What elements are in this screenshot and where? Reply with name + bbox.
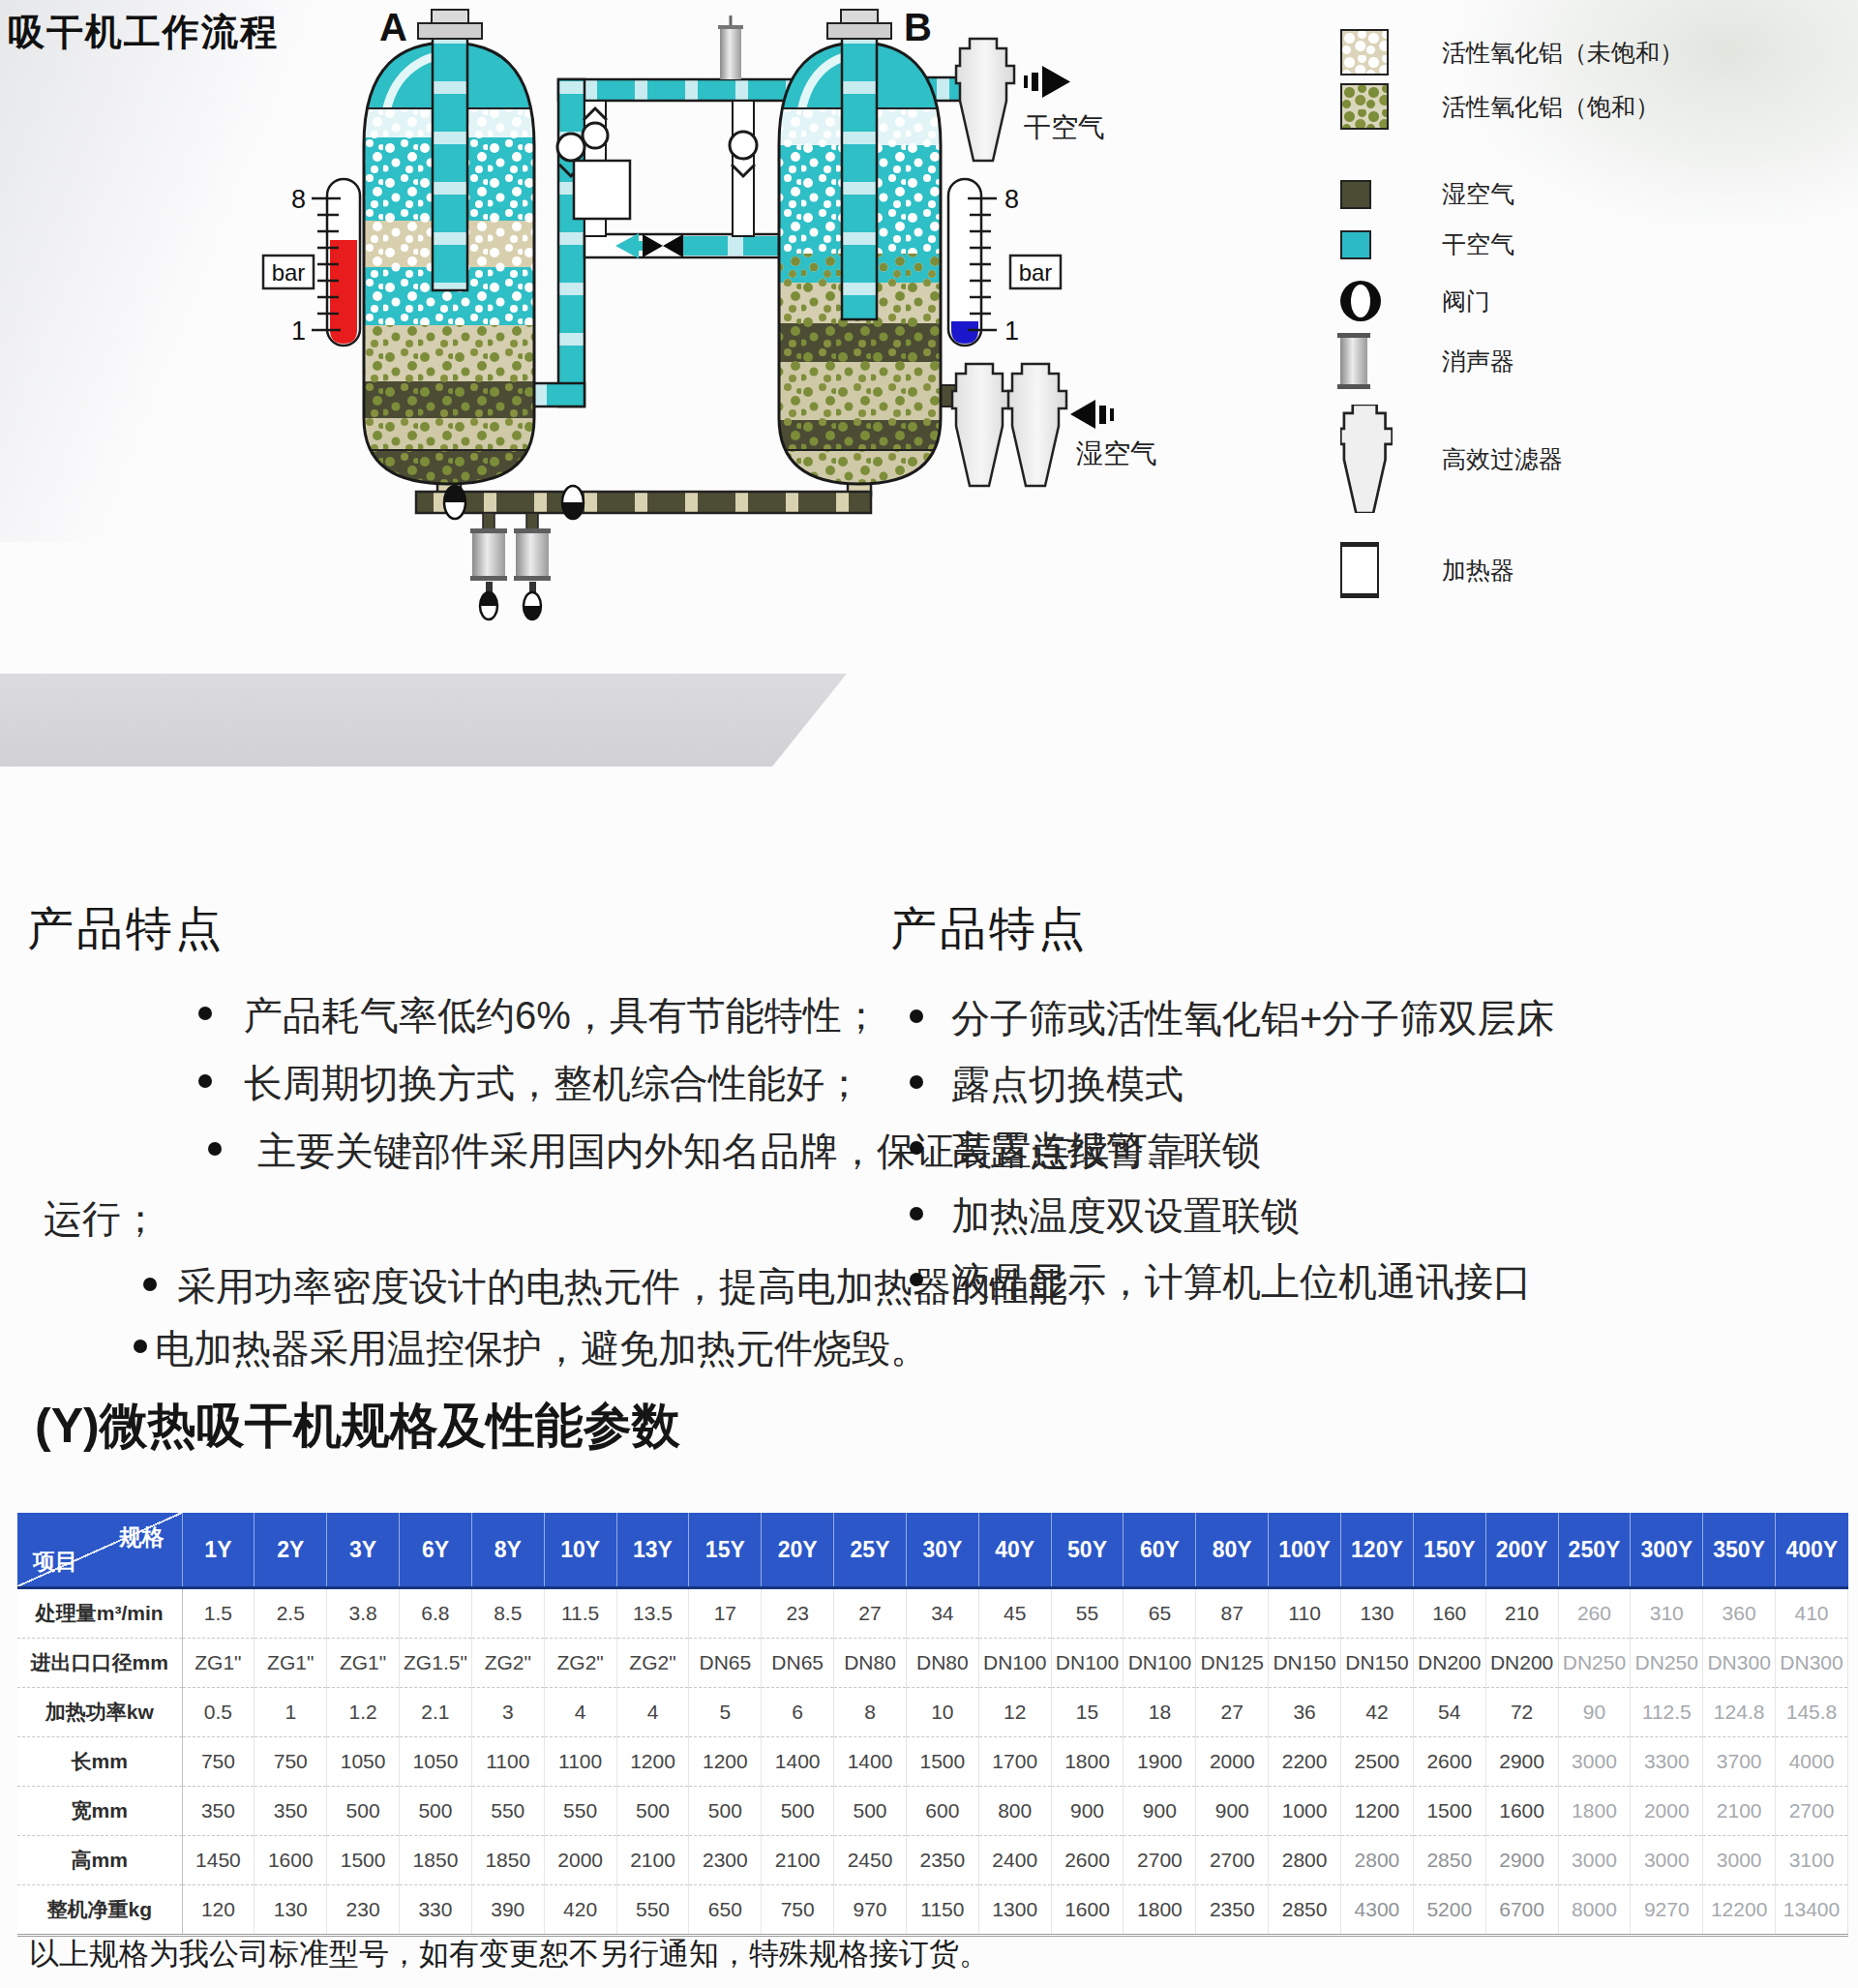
spec-cell: 2600: [1051, 1836, 1124, 1885]
legend-item-label: 阀门: [1442, 286, 1490, 317]
spec-cell: 10: [906, 1688, 978, 1737]
manifold-valve-right: [562, 486, 584, 519]
spec-cell: 2450: [834, 1836, 907, 1885]
spec-cell: 3000: [1631, 1836, 1703, 1885]
spec-cell: DN300: [1703, 1639, 1776, 1688]
spec-cell: 1800: [1558, 1787, 1631, 1836]
legend-item: 活性氧化铝（未饱和）: [1340, 29, 1843, 75]
spec-corner-cell: 规格 项目: [17, 1513, 182, 1588]
feature-item: 分子筛或活性氧化铝+分子筛双层床: [951, 992, 1554, 1045]
spec-column-header: 40Y: [978, 1513, 1051, 1588]
spec-column-header: 13Y: [616, 1513, 689, 1588]
spec-cell: 1850: [400, 1836, 472, 1885]
spec-cell: 13400: [1776, 1885, 1848, 1936]
spec-row: 处理量m³/min1.52.53.86.88.511.513.517232734…: [17, 1588, 1848, 1639]
drain-valve-right: [524, 592, 541, 619]
drain-valve-left: [480, 592, 497, 619]
spec-column-header: 15Y: [689, 1513, 762, 1588]
features-left-heading: 产品特点: [27, 898, 225, 960]
legend-item: 活性氧化铝（饱和）: [1340, 83, 1843, 130]
spec-cell: 90: [1558, 1688, 1631, 1737]
spec-cell: 2.1: [400, 1688, 472, 1737]
spec-cell: 970: [834, 1885, 907, 1936]
tower-b-label: B: [904, 6, 932, 48]
spec-cell: 27: [1196, 1688, 1269, 1737]
spec-column-header: 100Y: [1269, 1513, 1341, 1588]
regeneration-loop: [557, 101, 757, 236]
spec-row: 进出口口径mmZG1"ZG1"ZG1"ZG1.5"ZG2"ZG2"ZG2"DN6…: [17, 1639, 1848, 1688]
spec-cell: DN125: [1196, 1639, 1269, 1688]
tower-b: [779, 10, 949, 484]
spec-cell: 310: [1631, 1588, 1703, 1639]
heater-box: [574, 161, 630, 219]
bullet-dot: [910, 1273, 923, 1286]
feature-item: 长周期切换方式，整机综合性能好；: [244, 1057, 863, 1110]
spec-cell: 1050: [400, 1737, 472, 1787]
spec-table: 规格 项目 1Y2Y3Y6Y8Y10Y13Y15Y20Y25Y30Y40Y50Y…: [17, 1513, 1848, 1937]
spec-cell: 1800: [1051, 1737, 1124, 1787]
gauge-unit-label: bar: [272, 259, 306, 286]
spec-cell: 350: [255, 1787, 327, 1836]
spec-cell: DN200: [1413, 1639, 1485, 1688]
spec-cell: 3100: [1776, 1836, 1848, 1885]
muffler-right: [514, 528, 551, 593]
spec-header-row: 规格 项目 1Y2Y3Y6Y8Y10Y13Y15Y20Y25Y30Y40Y50Y…: [17, 1513, 1848, 1588]
spec-cell: DN150: [1341, 1639, 1414, 1688]
spec-cell: DN65: [689, 1639, 762, 1688]
spec-column-header: 3Y: [327, 1513, 400, 1588]
spec-column-header: 120Y: [1341, 1513, 1414, 1588]
spec-cell: 1600: [1485, 1787, 1558, 1836]
spec-cell: 1200: [689, 1737, 762, 1787]
legend-item-label: 消声器: [1442, 346, 1514, 377]
legend-item-label: 加热器: [1442, 555, 1514, 587]
spec-cell: 2700: [1124, 1836, 1196, 1885]
spec-cell: 2900: [1485, 1737, 1558, 1787]
spec-cell: 1100: [471, 1737, 544, 1787]
spec-cell: 2350: [1196, 1885, 1269, 1936]
spec-cell: 3.8: [327, 1588, 400, 1639]
spec-row-label: 处理量m³/min: [17, 1588, 182, 1639]
spec-cell: 2100: [762, 1836, 834, 1885]
spec-cell: 6.8: [400, 1588, 472, 1639]
spec-cell: 500: [400, 1787, 472, 1836]
spec-row: 高mm1450160015001850185020002100230021002…: [17, 1836, 1848, 1885]
spec-cell: 6: [762, 1688, 834, 1737]
spec-cell: 1700: [978, 1737, 1051, 1787]
spec-column-header: 6Y: [400, 1513, 472, 1588]
tower-a-flange: [418, 10, 482, 39]
spec-cell: 650: [689, 1885, 762, 1936]
spec-cell: 3700: [1703, 1737, 1776, 1787]
wet-air-swatch: [1340, 180, 1442, 209]
bullet-dot: [910, 1009, 923, 1023]
spec-cell: 87: [1196, 1588, 1269, 1639]
spec-cell: DN80: [834, 1639, 907, 1688]
spec-row-label: 整机净重kg: [17, 1885, 182, 1936]
legend-item: 湿空气: [1340, 178, 1843, 210]
legend-item: 高效过滤器: [1340, 405, 1843, 513]
spec-cell: ZG2": [616, 1639, 689, 1688]
spec-cell: DN250: [1558, 1639, 1631, 1688]
divider-band: [0, 674, 852, 767]
spec-row: 整机净重kg1201302303303904205506507509701150…: [17, 1885, 1848, 1936]
features-right-heading: 产品特点: [890, 898, 1088, 960]
spec-cell: 130: [255, 1885, 327, 1936]
spec-cell: 112.5: [1631, 1688, 1703, 1737]
spec-column-header: 150Y: [1413, 1513, 1485, 1588]
spec-cell: 4000: [1776, 1737, 1848, 1787]
gauge-unit-label: bar: [1019, 259, 1053, 286]
spec-cell: 2000: [1631, 1787, 1703, 1836]
spec-column-header: 200Y: [1485, 1513, 1558, 1588]
spec-cell: 3000: [1703, 1836, 1776, 1885]
spec-cell: 6700: [1485, 1885, 1558, 1936]
spec-cell: 390: [471, 1885, 544, 1936]
spec-cell: 210: [1485, 1588, 1558, 1639]
spec-cell: 5: [689, 1688, 762, 1737]
spec-cell: 160: [1413, 1588, 1485, 1639]
spec-cell: 1050: [327, 1737, 400, 1787]
spec-cell: 18: [1124, 1688, 1196, 1737]
spec-cell: 15: [1051, 1688, 1124, 1737]
inlet-filter-icon-1: [952, 364, 1010, 486]
spec-cell: 54: [1413, 1688, 1485, 1737]
spec-column-header: 20Y: [762, 1513, 834, 1588]
spec-column-header: 350Y: [1703, 1513, 1776, 1588]
tower-b-flange: [827, 10, 891, 39]
spec-cell: 72: [1485, 1688, 1558, 1737]
spec-cell: DN150: [1269, 1639, 1341, 1688]
spec-cell: 2100: [616, 1836, 689, 1885]
alumina-unsaturated-swatch: [1340, 29, 1442, 75]
spec-cell: 3000: [1558, 1836, 1631, 1885]
feature-item: 液晶显示，计算机上位机通讯接口: [951, 1255, 1532, 1309]
spec-cell: 36: [1269, 1688, 1341, 1737]
spec-column-header: 1Y: [182, 1513, 255, 1588]
spec-cell: 5200: [1413, 1885, 1485, 1936]
heater-icon: [1340, 542, 1442, 598]
spec-cell: 330: [400, 1885, 472, 1936]
spec-cell: 1500: [906, 1737, 978, 1787]
spec-cell: 12200: [1703, 1885, 1776, 1936]
spec-row-label: 长mm: [17, 1737, 182, 1787]
muffler-left: [470, 528, 507, 593]
spec-cell: 2100: [1703, 1787, 1776, 1836]
spec-cell: 2300: [689, 1836, 762, 1885]
spec-cell: 1200: [616, 1737, 689, 1787]
spec-row: 长mm7507501050105011001100120012001400140…: [17, 1737, 1848, 1787]
inlet-filter-icon-2: [1008, 364, 1066, 486]
spec-cell: 230: [327, 1885, 400, 1936]
legend-item: 消声器: [1340, 333, 1843, 389]
spec-cell: 900: [1051, 1787, 1124, 1836]
spec-cell: ZG2": [471, 1639, 544, 1688]
spec-cell: 1450: [182, 1836, 255, 1885]
spec-cell: 34: [906, 1588, 978, 1639]
wet-air-label: 湿空气: [1076, 438, 1157, 468]
spec-row-label: 进出口口径mm: [17, 1639, 182, 1688]
spec-cell: 13.5: [616, 1588, 689, 1639]
spec-cell: 2900: [1485, 1836, 1558, 1885]
spec-cell: 1600: [255, 1836, 327, 1885]
spec-cell: 55: [1051, 1588, 1124, 1639]
spec-column-header: 80Y: [1196, 1513, 1269, 1588]
spec-cell: 1500: [327, 1836, 400, 1885]
spec-cell: 8.5: [471, 1588, 544, 1639]
spec-cell: ZG1": [327, 1639, 400, 1688]
spec-cell: 2600: [1413, 1737, 1485, 1787]
feature-item: 电加热器采用温控保护，避免加热元件烧毁。: [155, 1322, 929, 1375]
wet-air-arrow: [1070, 400, 1114, 429]
spec-column-header: 250Y: [1558, 1513, 1631, 1588]
spec-cell: 420: [544, 1885, 616, 1936]
spec-row: 宽mm3503505005005505505005005005006008009…: [17, 1787, 1848, 1836]
spec-cell: 4: [544, 1688, 616, 1737]
spec-cell: 2800: [1341, 1836, 1414, 1885]
legend-item: 干空气: [1340, 228, 1843, 260]
spec-cell: 550: [616, 1885, 689, 1936]
spec-row-label: 宽mm: [17, 1787, 182, 1836]
spec-cell: 2700: [1196, 1836, 1269, 1885]
feature-item: 露点切换模式: [951, 1058, 1184, 1111]
muffler-icon: [1340, 333, 1442, 389]
bullet-dot: [134, 1340, 147, 1353]
spec-cell: 2500: [1341, 1737, 1414, 1787]
spec-cell: 27: [834, 1588, 907, 1639]
bottom-manifold: [416, 470, 871, 619]
spec-cell: DN100: [1124, 1639, 1196, 1688]
bullet-dot: [143, 1278, 157, 1291]
legend-item: 阀门: [1340, 281, 1843, 321]
spec-cell: 110: [1269, 1588, 1341, 1639]
spec-cell: 3: [471, 1688, 544, 1737]
spec-cell: 1850: [471, 1836, 544, 1885]
spec-cell: 8: [834, 1688, 907, 1737]
bullet-dot: [910, 1075, 923, 1089]
bullet-dot: [910, 1207, 923, 1220]
spec-cell: 12: [978, 1688, 1051, 1737]
spec-cell: 800: [978, 1787, 1051, 1836]
gauge-max-label: 8: [1004, 185, 1019, 214]
spec-cell: DN250: [1631, 1639, 1703, 1688]
spec-cell: 1200: [1341, 1787, 1414, 1836]
spec-table-title: (Y)微热吸干机规格及性能参数: [35, 1394, 680, 1459]
dry-air-swatch: [1340, 230, 1442, 259]
spec-cell: 1600: [1051, 1885, 1124, 1936]
spec-cell: 2.5: [255, 1588, 327, 1639]
spec-row-label: 加热功率kw: [17, 1688, 182, 1737]
spec-cell: 11.5: [544, 1588, 616, 1639]
spec-cell: 2850: [1413, 1836, 1485, 1885]
spec-cell: 4: [616, 1688, 689, 1737]
dry-air-arrow: [1024, 66, 1070, 98]
tower-a-label: A: [379, 6, 407, 48]
spec-cell: DN300: [1776, 1639, 1848, 1688]
bullet-dot: [198, 1074, 212, 1088]
spec-cell: 45: [978, 1588, 1051, 1639]
spec-cell: 1150: [906, 1885, 978, 1936]
spec-cell: 500: [327, 1787, 400, 1836]
spec-cell: 1400: [762, 1737, 834, 1787]
spec-cell: 360: [1703, 1588, 1776, 1639]
spec-cell: 1.5: [182, 1588, 255, 1639]
spec-cell: 4300: [1341, 1885, 1414, 1936]
spec-cell: 1900: [1124, 1737, 1196, 1787]
spec-cell: 500: [762, 1787, 834, 1836]
bullet-dot: [208, 1142, 222, 1156]
legend-item-label: 活性氧化铝（未饱和）: [1442, 37, 1684, 69]
feature-continuation: 运行；: [44, 1192, 160, 1246]
spec-cell: DN200: [1485, 1639, 1558, 1688]
spec-cell: 2700: [1776, 1787, 1848, 1836]
spec-column-header: 60Y: [1124, 1513, 1196, 1588]
spec-cell: 3300: [1631, 1737, 1703, 1787]
legend-item-label: 干空气: [1442, 228, 1514, 260]
tower-a-riser-pipe: [433, 12, 467, 290]
spec-cell: 1: [255, 1688, 327, 1737]
spec-cell: 2000: [544, 1836, 616, 1885]
legend-item: 加热器: [1340, 542, 1843, 598]
manifold-valve-left: [444, 486, 465, 519]
spec-cell: 550: [471, 1787, 544, 1836]
spec-cell: 1000: [1269, 1787, 1341, 1836]
spec-cell: 2200: [1269, 1737, 1341, 1787]
spec-row-label: 高mm: [17, 1836, 182, 1885]
spec-cell: 500: [689, 1787, 762, 1836]
spec-cell: 145.8: [1776, 1688, 1848, 1737]
spec-cell: 23: [762, 1588, 834, 1639]
spec-cell: 500: [834, 1787, 907, 1836]
spec-cell: DN100: [978, 1639, 1051, 1688]
spec-cell: 42: [1341, 1688, 1414, 1737]
feature-item: 产品耗气率低约6%，具有节能特性；: [244, 989, 881, 1042]
spec-cell: 500: [616, 1787, 689, 1836]
gauge-min-label: 1: [291, 316, 306, 346]
spec-column-header: 2Y: [255, 1513, 327, 1588]
feature-item: 加热温度双设置联锁: [951, 1190, 1300, 1243]
corner-item-label: 项目: [33, 1547, 77, 1577]
purge-muffler: [718, 15, 743, 79]
pressure-gauge-left: 8 1 bar: [263, 179, 360, 346]
spec-cell: ZG1.5": [400, 1639, 472, 1688]
spec-column-header: 30Y: [906, 1513, 978, 1588]
spec-cell: ZG2": [544, 1639, 616, 1688]
spec-cell: 600: [906, 1787, 978, 1836]
spec-cell: 2400: [978, 1836, 1051, 1885]
spec-cell: ZG1": [182, 1639, 255, 1688]
spec-cell: 17: [689, 1588, 762, 1639]
spec-cell: DN80: [906, 1639, 978, 1688]
spec-cell: ZG1": [255, 1639, 327, 1688]
spec-cell: 900: [1196, 1787, 1269, 1836]
spec-cell: 1800: [1124, 1885, 1196, 1936]
feature-item: 高露点报警、联锁: [951, 1124, 1261, 1177]
gauge-min-label: 1: [1004, 316, 1019, 346]
dry-air-label: 干空气: [1024, 112, 1105, 142]
spec-cell: 750: [182, 1737, 255, 1787]
spec-cell: 1100: [544, 1737, 616, 1787]
corner-spec-label: 规格: [120, 1522, 165, 1552]
spec-cell: 2000: [1196, 1737, 1269, 1787]
legend-item-label: 高效过滤器: [1442, 443, 1563, 475]
spec-cell: 1400: [834, 1737, 907, 1787]
tower-b-riser-pipe: [842, 12, 877, 319]
spec-cell: 3000: [1558, 1737, 1631, 1787]
bullet-dot: [910, 1141, 923, 1155]
spec-column-header: 300Y: [1631, 1513, 1703, 1588]
spec-cell: 750: [255, 1737, 327, 1787]
spec-cell: 260: [1558, 1588, 1631, 1639]
spec-cell: 350: [182, 1787, 255, 1836]
spec-cell: 750: [762, 1885, 834, 1936]
spec-cell: 2350: [906, 1836, 978, 1885]
spec-cell: 1.2: [327, 1688, 400, 1737]
spec-cell: DN100: [1051, 1639, 1124, 1688]
tower-a: [364, 10, 534, 484]
spec-cell: 410: [1776, 1588, 1848, 1639]
spec-cell: 900: [1124, 1787, 1196, 1836]
outlet-filter-icon: [956, 39, 1014, 161]
filter-icon: [1340, 405, 1442, 513]
spec-column-header: 10Y: [544, 1513, 616, 1588]
gauge-max-label: 8: [291, 185, 306, 214]
spec-cell: 1300: [978, 1885, 1051, 1936]
spec-column-header: 400Y: [1776, 1513, 1848, 1588]
spec-cell: 2800: [1269, 1836, 1341, 1885]
spec-cell: DN65: [762, 1639, 834, 1688]
spec-row: 加热功率kw0.511.22.1344568101215182736425472…: [17, 1688, 1848, 1737]
bullet-dot: [198, 1007, 212, 1020]
spec-column-header: 25Y: [834, 1513, 907, 1588]
legend-item-label: 活性氧化铝（饱和）: [1442, 91, 1660, 123]
pressure-gauge-right: 8 1 bar: [948, 179, 1061, 346]
spec-cell: 2850: [1269, 1885, 1341, 1936]
spec-cell: 124.8: [1703, 1688, 1776, 1737]
spec-cell: 65: [1124, 1588, 1196, 1639]
spec-cell: 0.5: [182, 1688, 255, 1737]
spec-footnote: 以上规格为我公司标准型号，如有变更恕不另行通知，特殊规格接订货。: [29, 1934, 989, 1974]
spec-cell: 130: [1341, 1588, 1414, 1639]
alumina-saturated-swatch: [1340, 83, 1442, 130]
spec-cell: 1500: [1413, 1787, 1485, 1836]
valve-icon: [1340, 281, 1442, 321]
spec-column-header: 8Y: [471, 1513, 544, 1588]
spec-cell: 550: [544, 1787, 616, 1836]
spec-cell: 120: [182, 1885, 255, 1936]
spec-cell: 9270: [1631, 1885, 1703, 1936]
spec-cell: 8000: [1558, 1885, 1631, 1936]
legend-item-label: 湿空气: [1442, 178, 1514, 210]
spec-column-header: 50Y: [1051, 1513, 1124, 1588]
